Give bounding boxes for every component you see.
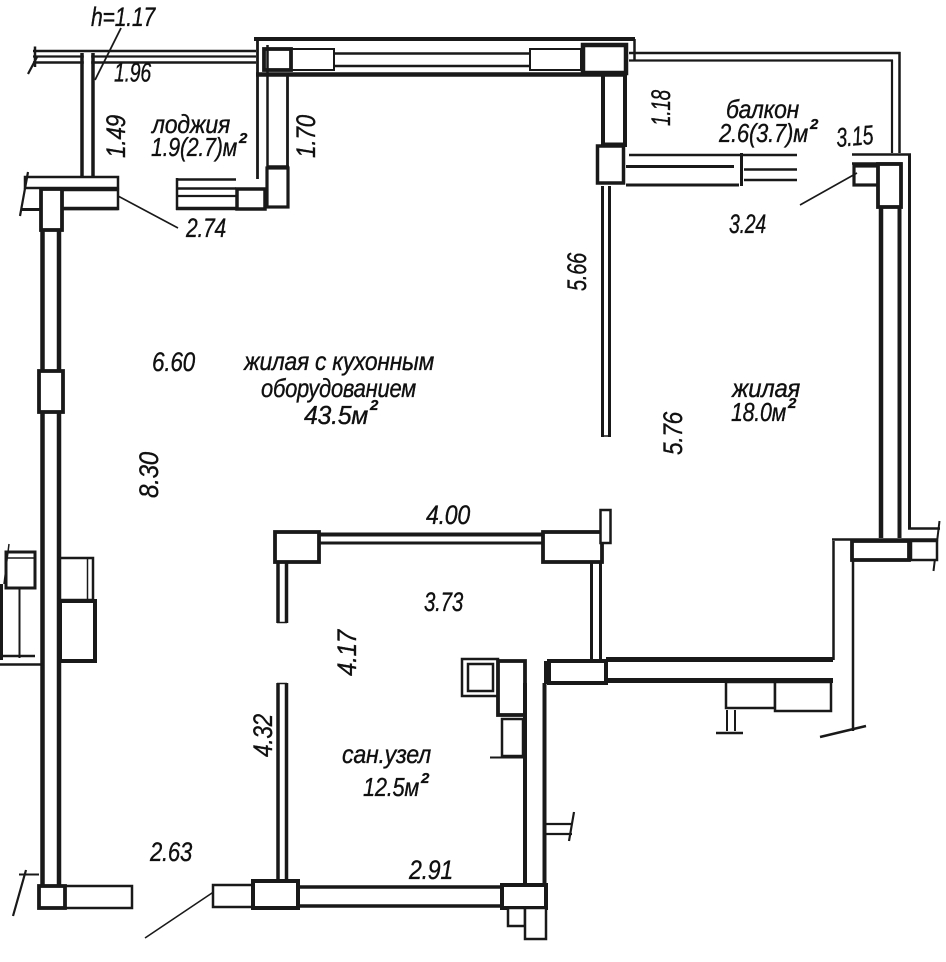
svg-text:4.32: 4.32 — [248, 714, 278, 757]
svg-text:1.18: 1.18 — [646, 90, 676, 126]
svg-text:3.15: 3.15 — [835, 120, 875, 153]
svg-text:2.63: 2.63 — [149, 837, 192, 867]
svg-text:2: 2 — [238, 130, 248, 147]
svg-text:оборудованием: оборудованием — [261, 373, 416, 403]
svg-text:2.74: 2.74 — [185, 213, 226, 243]
svg-text:жилая с кухонным: жилая с кухонным — [243, 346, 434, 376]
svg-text:2.91: 2.91 — [408, 855, 453, 885]
svg-text:43.5м: 43.5м — [304, 400, 368, 430]
svg-text:h=1.17: h=1.17 — [91, 2, 156, 32]
svg-text:8.30: 8.30 — [134, 452, 164, 498]
svg-text:1.96: 1.96 — [114, 58, 152, 88]
svg-text:2.6(3.7)м: 2.6(3.7)м — [718, 118, 808, 148]
svg-text:12.5м: 12.5м — [363, 772, 419, 802]
svg-text:1.49: 1.49 — [101, 115, 131, 158]
svg-text:18.0м: 18.0м — [731, 397, 786, 427]
svg-text:4.00: 4.00 — [426, 500, 470, 530]
svg-text:2: 2 — [787, 395, 797, 412]
svg-text:4.17: 4.17 — [332, 629, 362, 676]
svg-text:3.24: 3.24 — [729, 209, 766, 239]
svg-text:6.60: 6.60 — [152, 347, 195, 377]
svg-text:2: 2 — [809, 116, 819, 133]
svg-text:3.73: 3.73 — [424, 587, 463, 617]
svg-text:сан.узел: сан.узел — [342, 739, 432, 769]
svg-text:5.66: 5.66 — [562, 252, 592, 291]
svg-text:1.70: 1.70 — [291, 115, 321, 158]
svg-text:2: 2 — [369, 397, 379, 414]
svg-text:1.9(2.7)м: 1.9(2.7)м — [151, 132, 237, 162]
svg-text:2: 2 — [420, 770, 430, 787]
svg-text:5.76: 5.76 — [658, 411, 688, 455]
